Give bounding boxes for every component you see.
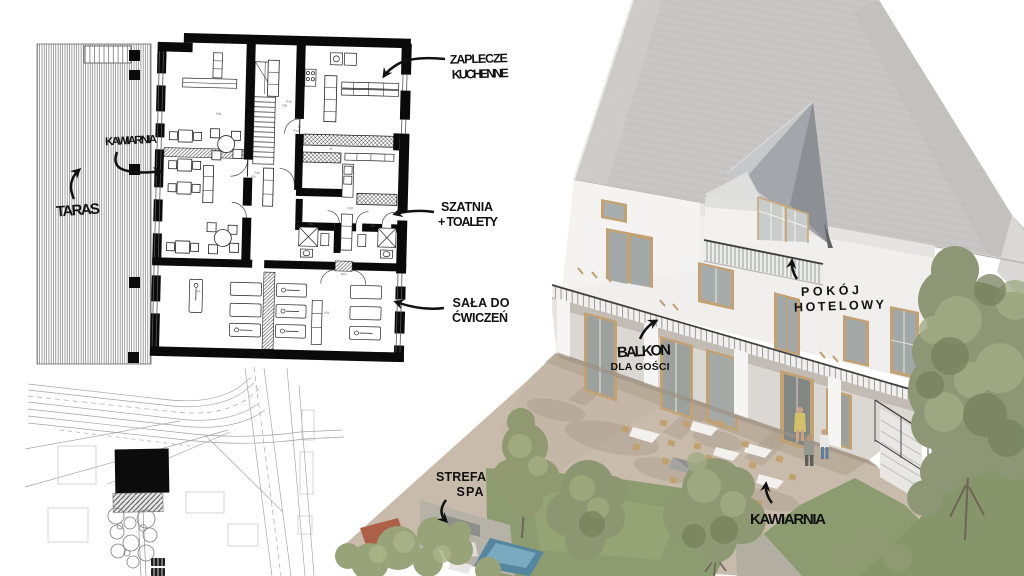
svg-text:BALKON: BALKON [617,342,672,362]
svg-text:30: 30 [329,147,333,151]
svg-text:TARAS: TARAS [55,200,100,220]
svg-text:100: 100 [250,175,255,179]
svg-text:KUCHENNE: KUCHENNE [452,66,509,81]
svg-text:P10: P10 [348,206,354,210]
svg-text:S01: S01 [324,311,330,315]
svg-text:DLA GOŚCI: DLA GOŚCI [611,360,670,373]
svg-text:200: 200 [282,103,287,107]
svg-text:+ TOALETY: + TOALETY [438,215,499,229]
svg-text:SZATNIA: SZATNIA [441,200,493,214]
svg-text:P10: P10 [341,272,347,276]
svg-text:SAŁA DO: SAŁA DO [453,296,510,310]
svg-text:STREFA: STREFA [436,470,486,484]
svg-text:P02: P02 [216,112,222,116]
svg-text:SPA: SPA [457,485,484,499]
svg-text:P10: P10 [294,129,300,133]
svg-text:AA: AA [196,289,200,293]
svg-text:10x: 10x [370,224,375,228]
svg-text:ZAPLECZE: ZAPLECZE [450,51,508,67]
svg-text:ĆWICZEŃ: ĆWICZEŃ [452,310,508,325]
svg-text:10x: 10x [308,222,313,226]
svg-text:KAWIARNIA: KAWIARNIA [750,511,826,528]
